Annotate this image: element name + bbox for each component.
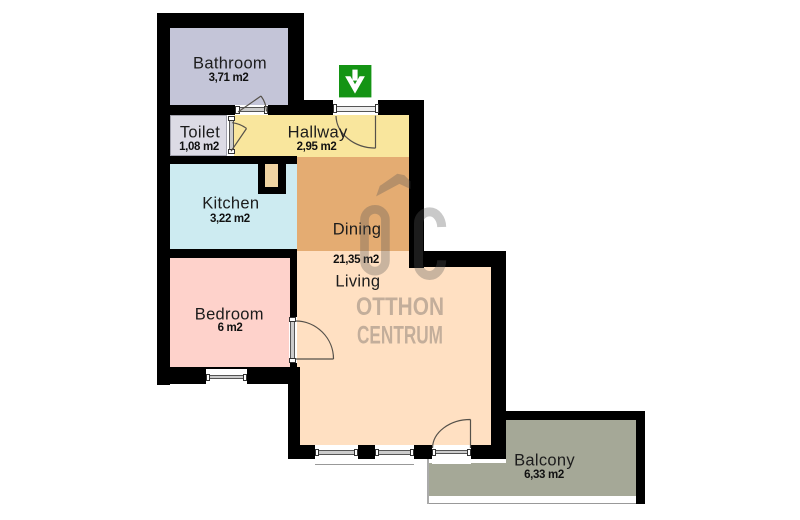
- svg-text:OTTHON: OTTHON: [356, 293, 444, 321]
- svg-text:CENTRUM: CENTRUM: [357, 322, 443, 350]
